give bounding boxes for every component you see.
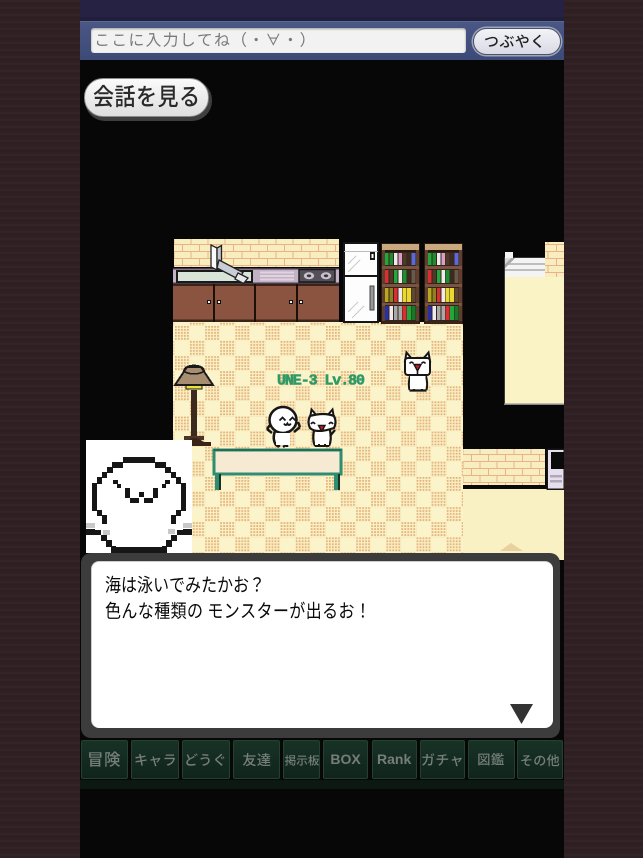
svg-text:UNE-3 Lv.80: UNE-3 Lv.80: [277, 373, 365, 390]
